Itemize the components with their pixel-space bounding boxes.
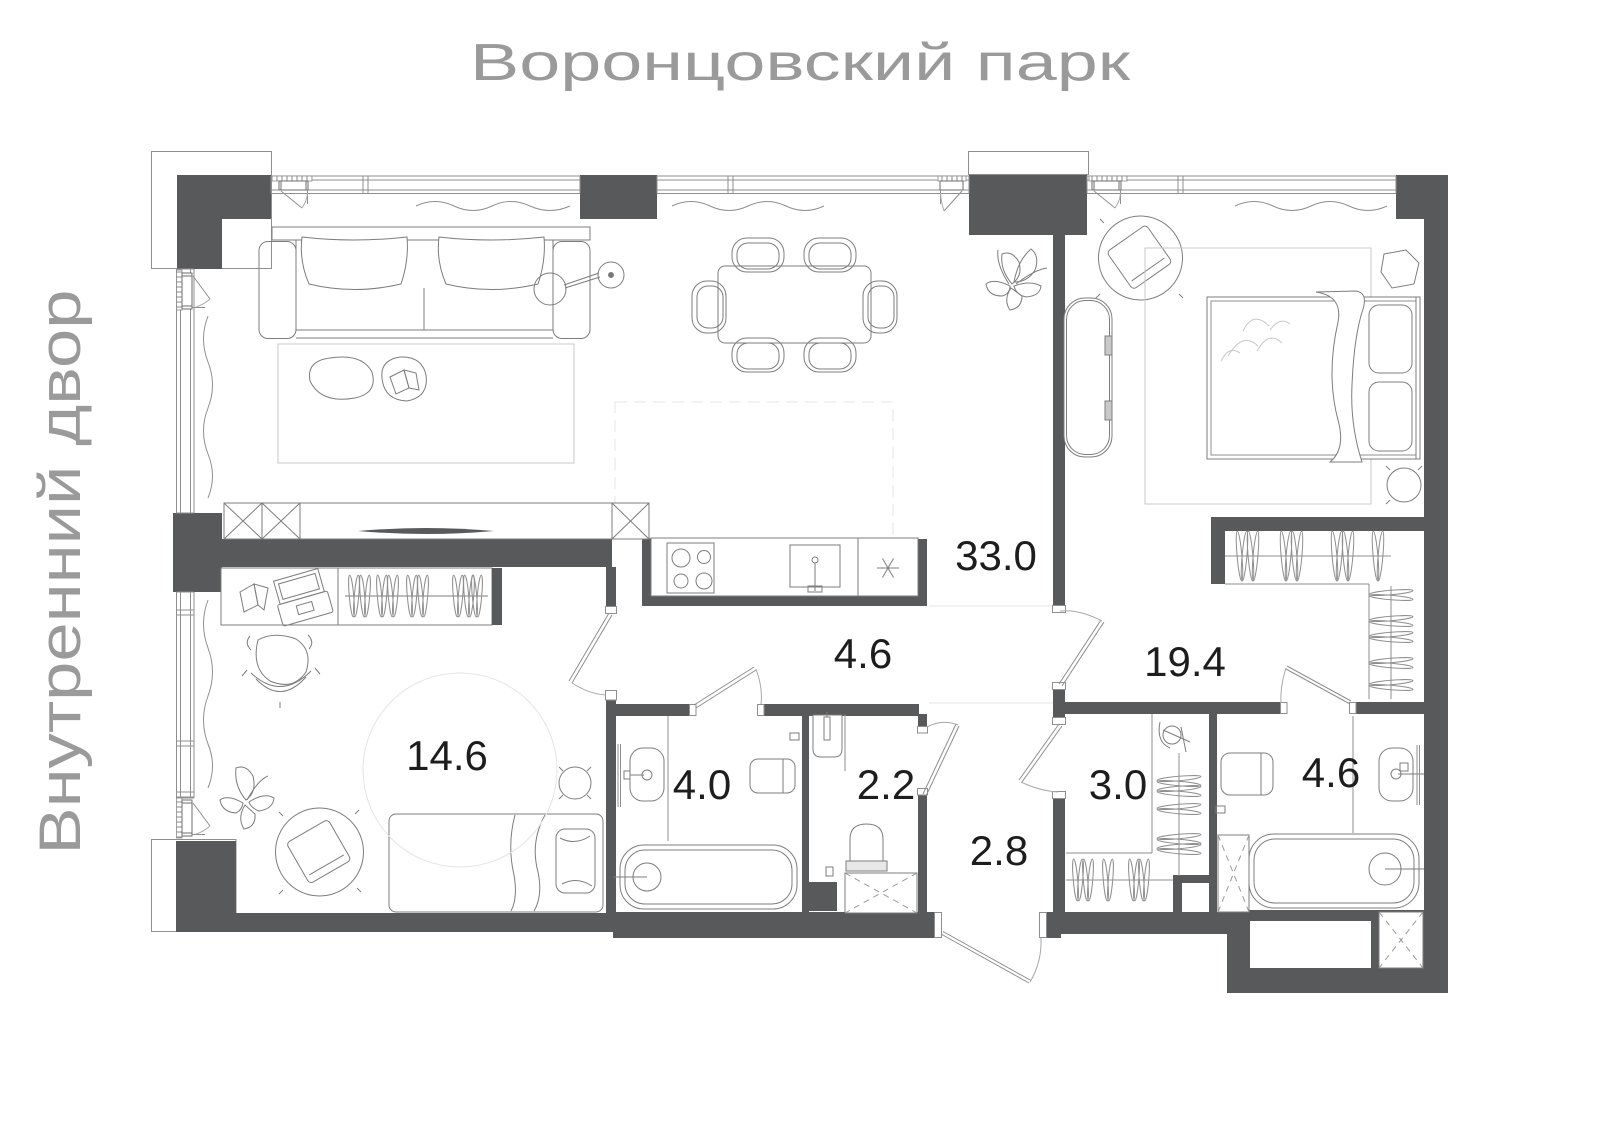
svg-text:4.6: 4.6 [1302,749,1360,796]
svg-text:2.8: 2.8 [970,827,1028,874]
svg-text:2.2: 2.2 [857,761,915,808]
svg-text:14.6: 14.6 [406,732,488,779]
svg-text:4.0: 4.0 [673,761,731,808]
svg-text:33.0: 33.0 [955,532,1037,579]
svg-text:3.0: 3.0 [1089,761,1147,808]
svg-text:Воронцовский парк: Воронцовский парк [470,34,1130,92]
svg-text:Внутренний двор: Внутренний двор [28,290,93,855]
svg-text:19.4: 19.4 [1144,638,1226,685]
svg-text:4.6: 4.6 [834,630,892,677]
